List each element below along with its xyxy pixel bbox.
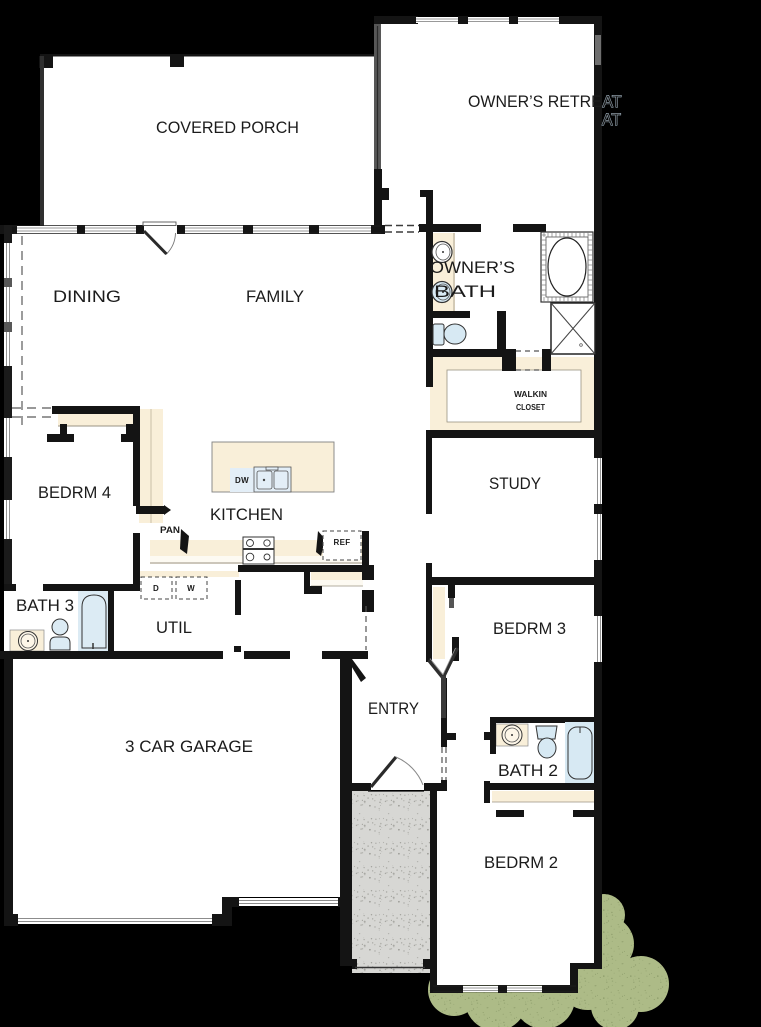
svg-text:REF: REF (334, 538, 351, 547)
svg-text:BEDRM 4: BEDRM 4 (38, 483, 111, 502)
svg-text:DINING: DINING (53, 287, 121, 306)
svg-text:KITCHEN: KITCHEN (210, 505, 283, 524)
svg-text:AT: AT (603, 92, 622, 111)
svg-text:3 CAR GARAGE: 3 CAR GARAGE (125, 737, 253, 756)
svg-text:BATH 3: BATH 3 (16, 596, 74, 615)
svg-text:BEDRM 2: BEDRM 2 (484, 853, 558, 872)
svg-text:STUDY: STUDY (489, 474, 541, 493)
svg-text:OWNER’S RETREAT: OWNER’S RETREAT (468, 92, 621, 111)
svg-text:PAN: PAN (160, 525, 180, 535)
svg-text:COVERED PORCH: COVERED PORCH (156, 118, 299, 137)
svg-text:AT: AT (602, 110, 621, 129)
svg-text:BATH: BATH (434, 282, 496, 301)
svg-text:WALKIN: WALKIN (514, 389, 547, 399)
svg-text:DW: DW (235, 476, 249, 485)
svg-text:D: D (153, 584, 159, 593)
svg-text:CLOSET: CLOSET (516, 402, 546, 412)
svg-text:FAMILY: FAMILY (246, 287, 304, 306)
svg-text:UTIL: UTIL (156, 618, 192, 637)
svg-text:W: W (187, 584, 195, 593)
svg-text:BATH 2: BATH 2 (498, 761, 558, 780)
svg-text:ENTRY: ENTRY (368, 699, 419, 718)
svg-text:BEDRM 3: BEDRM 3 (493, 619, 566, 638)
svg-text:OWNER’S: OWNER’S (430, 258, 515, 277)
